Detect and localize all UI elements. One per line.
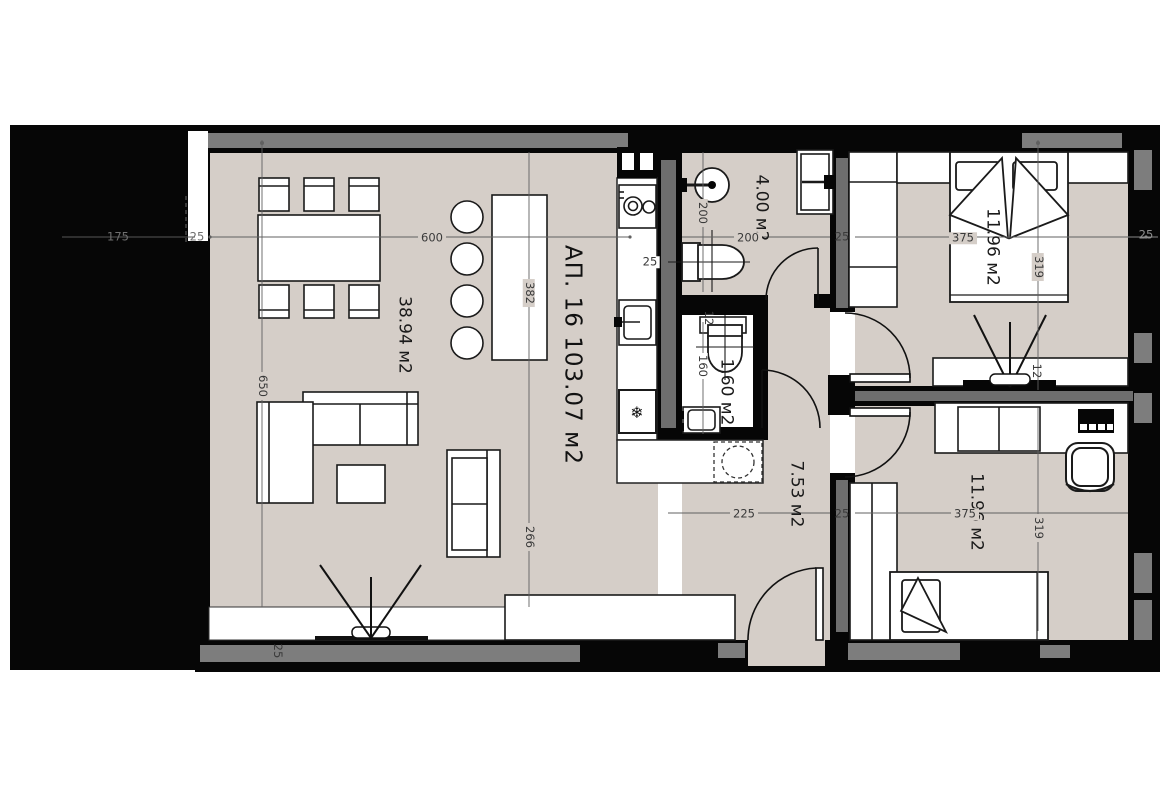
dining-set [258,178,380,318]
single-bed [890,572,1048,640]
dim-left-gap: 25 [190,231,205,243]
desk-chair-icon [1066,443,1114,491]
dim-tv-shelf-depth: 12 [1030,364,1042,379]
coffee-table [337,465,385,503]
dim-kitchen-wall: 25 [641,256,660,268]
dim-bedroom-top-width: 375 [949,232,977,244]
apartment-title: АП. 16 103.07 м2 [561,245,584,465]
floor-plan: ❄ [0,0,1170,785]
dim-right-wall-top: 25 [1139,229,1154,241]
dim-wc-shelf-depth: 12 [702,311,714,326]
kitchen-sink-icon [614,300,656,345]
dim-bathroom-width: 200 [734,232,762,244]
dim-left-offset: 175 [107,231,129,243]
keyboard-icon [1078,409,1114,433]
dim-mid-wall-top: 25 [835,231,850,243]
wc-sink-icon [677,407,720,433]
dim-bedroom-bottom-width: 375 [951,508,979,520]
washbasin-icon [797,150,835,214]
sideboard [505,595,735,640]
dim-bathroom-height: 200 [696,199,708,227]
room-label-wc: 1.60 м2 [718,359,735,426]
dim-island-length: 382 [523,279,535,307]
left-gap-notch [188,131,208,241]
double-bed [950,152,1068,302]
stove-icon [619,185,656,228]
room-label-living: 38.94 м2 [396,296,413,374]
dim-wc-height: 160 [696,353,708,379]
dim-bedroom-top-height: 319 [1032,253,1044,281]
dim-living-width: 600 [418,232,446,244]
room-label-hallway: 7.53 м2 [788,461,805,528]
dim-hallway-width: 225 [730,508,758,520]
dim-bottom-wall: 25 [271,644,283,659]
entrance-threshold [748,640,825,666]
armchair [447,450,500,557]
dim-living-height: 650 [256,372,268,400]
fridge-icon: ❄ [619,390,656,433]
room-label-bedroom-top: 11.96 м2 [984,208,1001,286]
svg-text:❄: ❄ [630,403,643,422]
dim-living-lower-height: 266 [523,523,535,551]
dim-mid-wall-bottom: 25 [835,508,850,520]
electrical-panel-icon [617,147,657,178]
dim-bedroom-bottom-height: 319 [1032,514,1044,542]
